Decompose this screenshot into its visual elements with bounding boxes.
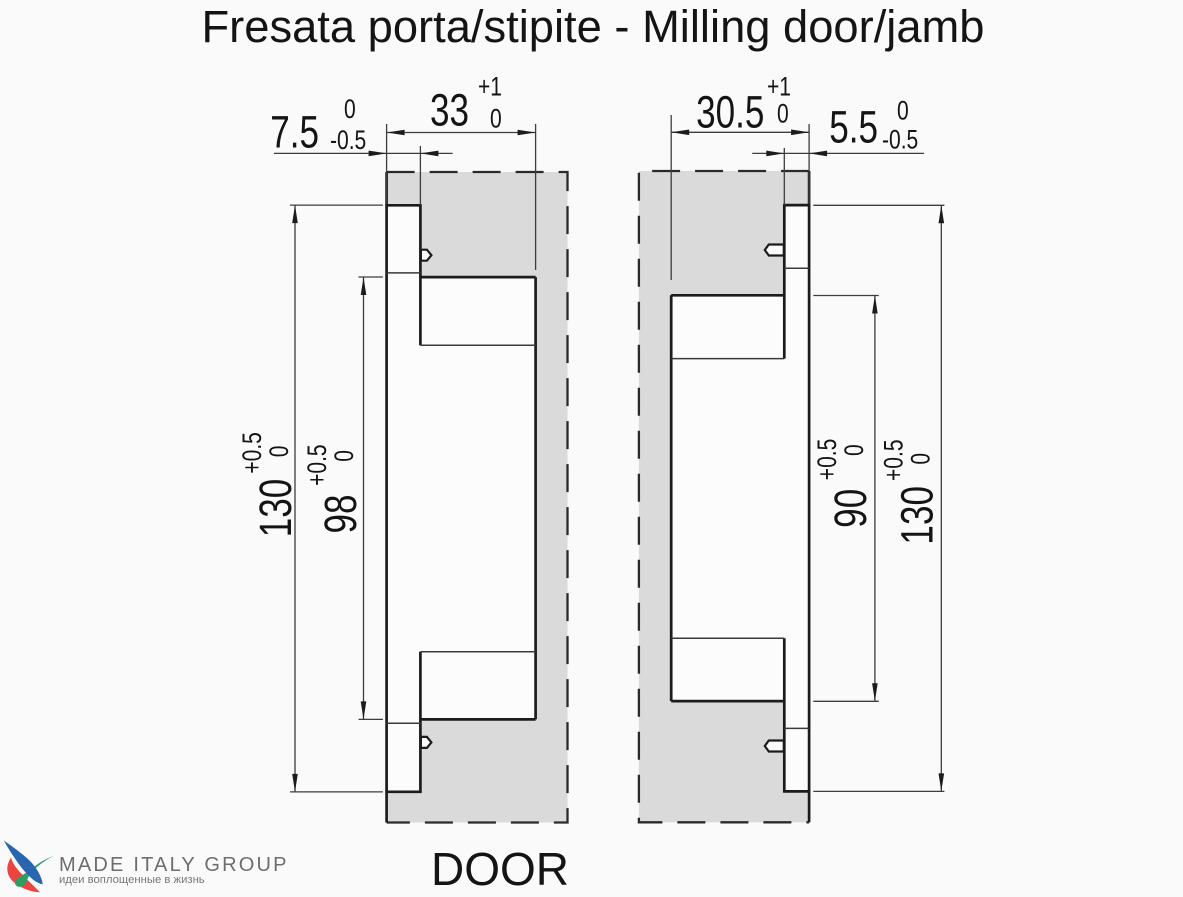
svg-text:130: 130: [250, 479, 301, 538]
svg-text:+0.5: +0.5: [879, 439, 909, 481]
svg-text:+1: +1: [767, 72, 791, 102]
svg-text:+0.5: +0.5: [303, 444, 333, 486]
svg-text:MADE ITALY GROUP: MADE ITALY GROUP: [59, 854, 289, 876]
svg-text:0: 0: [265, 446, 295, 458]
svg-text:+0.5: +0.5: [813, 439, 843, 481]
svg-text:0: 0: [490, 104, 502, 134]
svg-text:0: 0: [344, 95, 356, 125]
svg-text:идеи воплощенные в жизнь: идеи воплощенные в жизнь: [59, 874, 205, 886]
svg-text:+0.5: +0.5: [238, 432, 268, 474]
svg-text:33: 33: [430, 84, 469, 135]
svg-text:0: 0: [840, 444, 870, 456]
svg-text:5.5: 5.5: [829, 101, 878, 152]
svg-text:90: 90: [825, 489, 876, 528]
svg-text:0: 0: [330, 450, 360, 462]
svg-text:7.5: 7.5: [270, 106, 319, 157]
svg-text:0: 0: [906, 453, 936, 465]
svg-text:-0.5: -0.5: [882, 125, 918, 155]
svg-text:30.5: 30.5: [696, 86, 764, 137]
svg-text:-0.5: -0.5: [330, 126, 366, 156]
svg-text:DOOR: DOOR: [431, 843, 569, 895]
svg-text:Fresata porta/stipite - Millin: Fresata porta/stipite - Milling door/jam…: [202, 1, 985, 52]
svg-text:0: 0: [777, 99, 789, 129]
svg-text:98: 98: [315, 494, 366, 533]
svg-text:130: 130: [891, 486, 942, 545]
svg-text:0: 0: [897, 96, 909, 126]
svg-text:+1: +1: [478, 72, 502, 102]
